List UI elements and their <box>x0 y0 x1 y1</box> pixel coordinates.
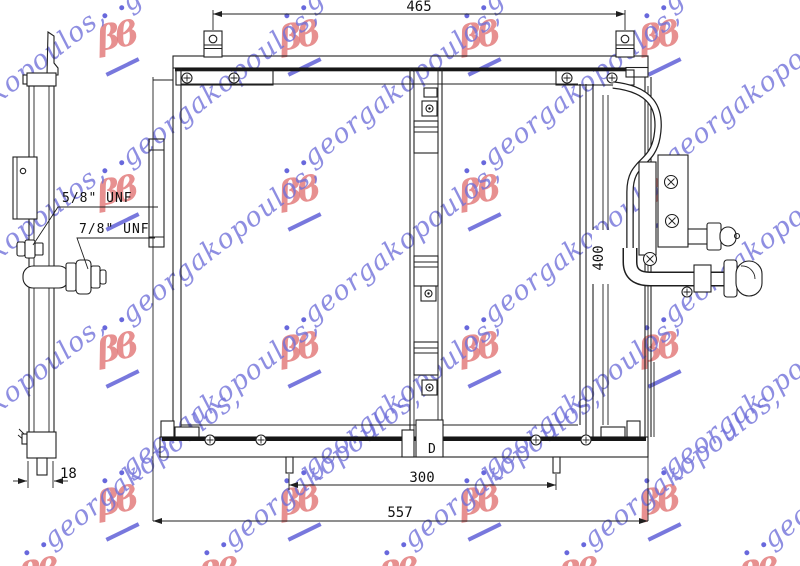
top-rail <box>173 56 648 68</box>
dimension-bracket-span: 300 <box>289 470 556 490</box>
right-pipe-assembly <box>613 77 762 437</box>
dimension-bottom-width-value: 557 <box>387 505 412 521</box>
dimension-bracket-span-value: 300 <box>409 470 434 486</box>
top-mount-tab-right <box>616 31 634 57</box>
bottom-marker-label: D <box>428 442 437 457</box>
side-top-cap <box>27 73 56 86</box>
side-column <box>29 86 54 433</box>
side-fitting-large <box>23 260 106 294</box>
core-body <box>173 68 608 437</box>
dimension-depth-value: 18 <box>60 466 77 482</box>
small-fitting-label: 5/8" UNF <box>62 191 133 206</box>
side-top-hook <box>47 32 58 75</box>
left-side-strip <box>149 139 164 247</box>
dimension-bottom-width: 557 <box>153 505 648 521</box>
side-fitting-small <box>17 240 43 258</box>
dimension-height: 400 <box>591 230 609 284</box>
right-bracket-plate <box>658 155 688 247</box>
top-mount-tab-left <box>204 31 222 57</box>
right-fitting-upper <box>688 223 740 250</box>
technical-drawing-page: βϐgeorgakopoulos,βϐgeorgakopoulos,βϐgeor… <box>0 0 800 566</box>
large-fitting-label: 7/8" UNF <box>79 222 150 237</box>
right-fitting-lower <box>724 260 762 297</box>
thread-labels: 5/8" UNF 7/8" UNF <box>33 191 158 269</box>
dimension-top-width: 465 <box>213 0 625 30</box>
side-view: 18 <box>13 32 106 488</box>
bottom-rail: D <box>160 420 648 473</box>
condenser-technical-drawing: 18 5/8" UNF 7/8" UNF <box>0 0 800 566</box>
center-divider <box>410 68 442 437</box>
dimension-height-value: 400 <box>591 245 607 270</box>
side-bottom-cap <box>27 432 56 458</box>
front-view: 465 <box>149 0 762 521</box>
dimension-top-width-value: 465 <box>406 0 431 15</box>
